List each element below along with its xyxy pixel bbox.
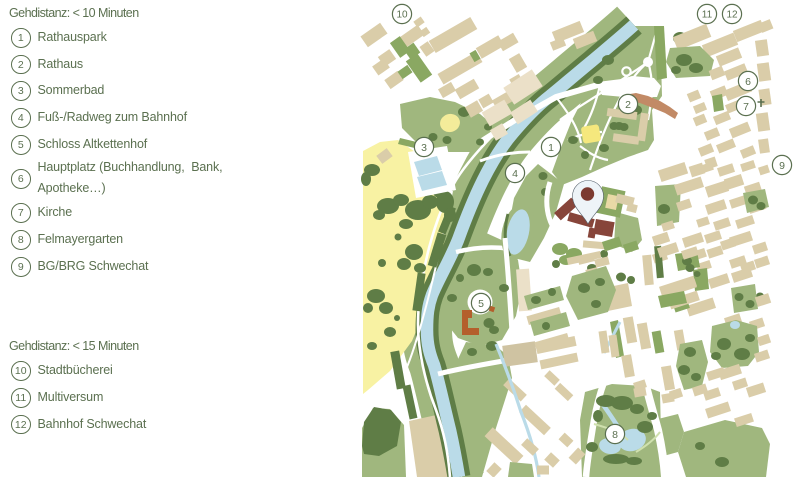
- svg-text:7: 7: [743, 101, 749, 113]
- svg-text:5: 5: [478, 298, 484, 310]
- svg-text:10: 10: [396, 10, 408, 21]
- svg-text:4: 4: [512, 168, 518, 180]
- svg-text:1: 1: [548, 142, 554, 154]
- svg-text:6: 6: [745, 76, 751, 88]
- svg-text:12: 12: [726, 10, 738, 21]
- svg-text:3: 3: [421, 142, 427, 154]
- svg-text:2: 2: [625, 99, 631, 111]
- svg-text:11: 11: [702, 10, 713, 21]
- svg-text:9: 9: [779, 160, 785, 172]
- svg-text:8: 8: [612, 429, 618, 441]
